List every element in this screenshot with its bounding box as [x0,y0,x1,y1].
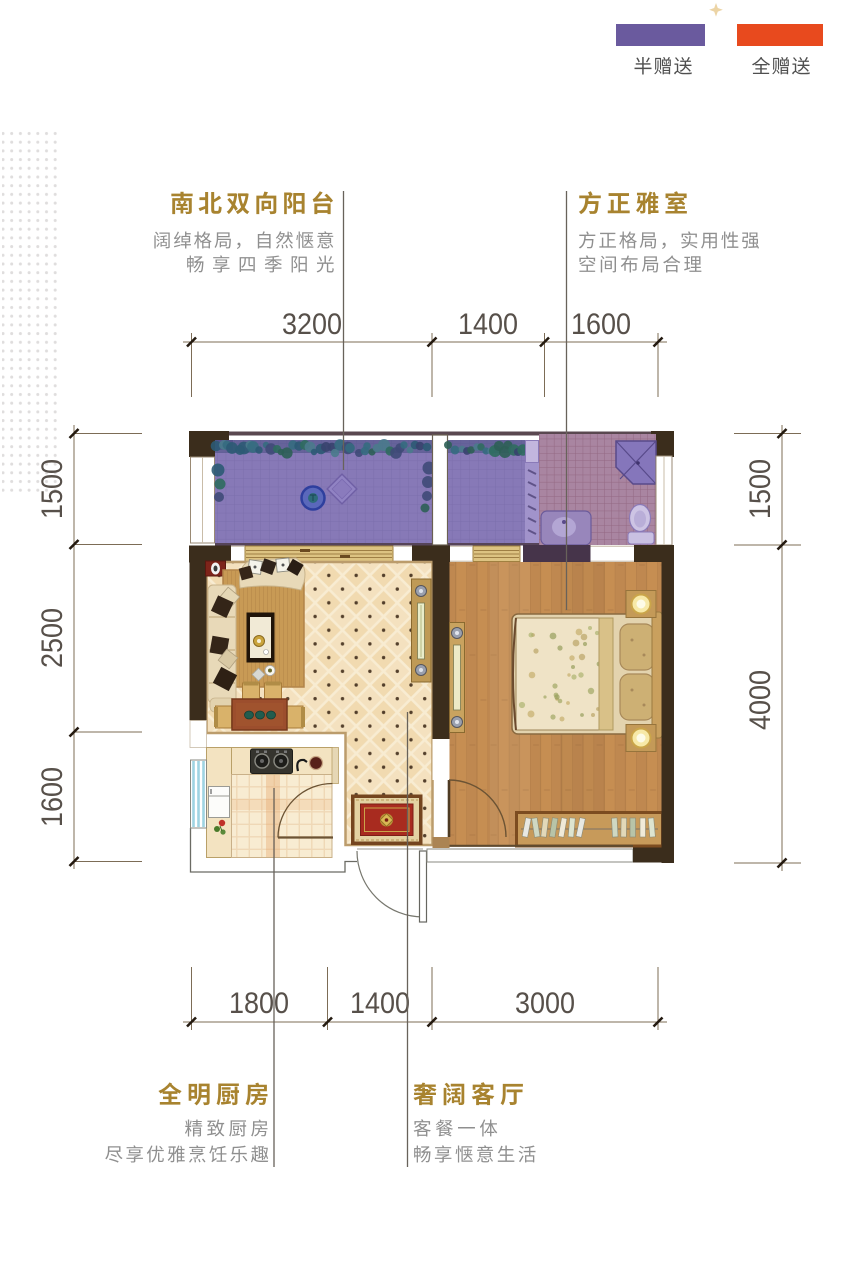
svg-text:3000: 3000 [515,987,575,1020]
svg-text:1500: 1500 [744,459,777,519]
svg-text:2500: 2500 [36,608,69,668]
svg-text:1800: 1800 [229,987,289,1020]
svg-text:1600: 1600 [571,308,631,341]
svg-text:1400: 1400 [458,308,518,341]
svg-text:1400: 1400 [350,987,410,1020]
svg-text:3200: 3200 [282,308,342,341]
svg-text:4000: 4000 [744,670,777,730]
svg-text:1600: 1600 [36,767,69,827]
svg-text:1500: 1500 [36,459,69,519]
